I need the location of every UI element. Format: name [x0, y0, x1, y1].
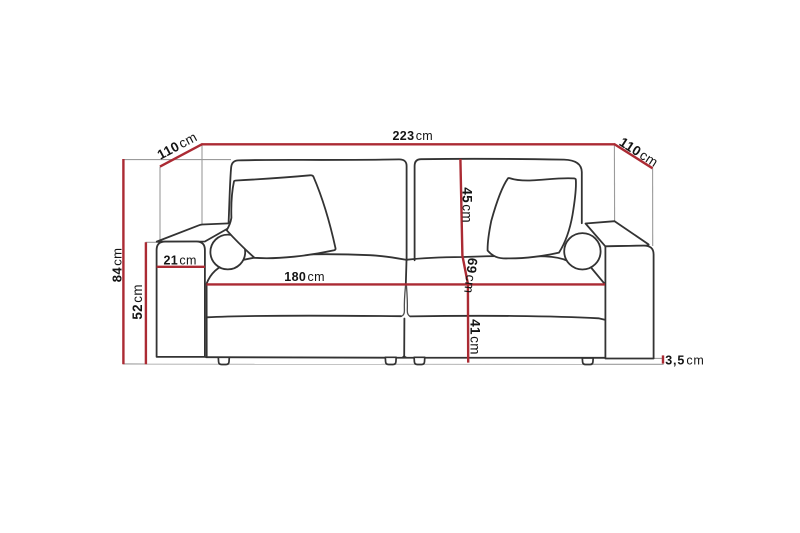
svg-text:41cm: 41cm	[468, 319, 483, 355]
svg-text:84cm: 84cm	[109, 248, 124, 283]
svg-text:223cm: 223cm	[393, 129, 434, 143]
svg-text:21cm: 21cm	[164, 254, 197, 268]
svg-text:180cm: 180cm	[284, 270, 325, 284]
svg-text:3,5cm: 3,5cm	[665, 354, 704, 368]
svg-text:45cm: 45cm	[460, 187, 475, 223]
svg-text:52cm: 52cm	[130, 284, 145, 319]
